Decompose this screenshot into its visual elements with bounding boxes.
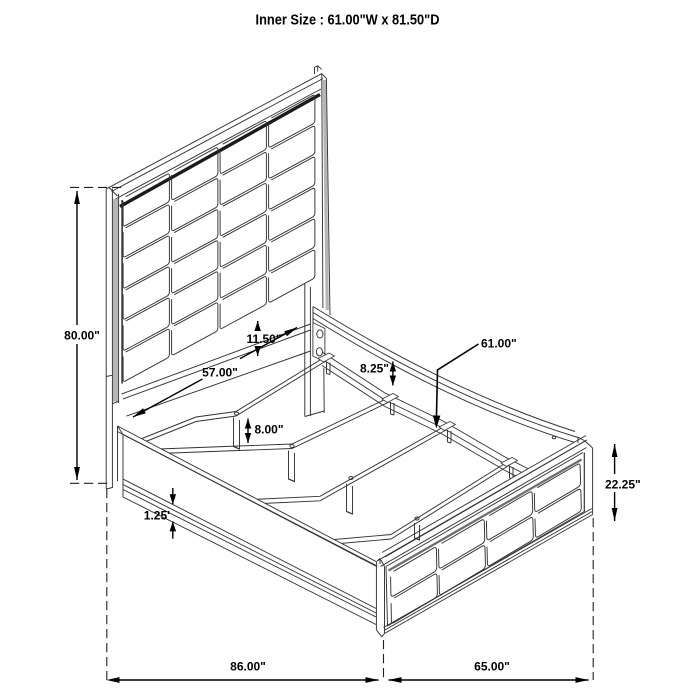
- svg-text:11.50": 11.50": [246, 332, 281, 346]
- svg-text:8.25": 8.25": [360, 362, 389, 376]
- svg-text:8.00": 8.00": [255, 423, 284, 437]
- svg-text:22.25": 22.25": [605, 478, 641, 492]
- svg-text:80.00": 80.00": [64, 329, 100, 343]
- svg-text:86.00": 86.00": [230, 660, 266, 674]
- svg-text:1.25': 1.25': [144, 509, 170, 523]
- svg-text:61.00": 61.00": [481, 337, 517, 351]
- svg-text:65.00": 65.00": [474, 660, 510, 674]
- svg-text:Inner Size : 61.00"W x 81.50"D: Inner Size : 61.00"W x 81.50"D: [256, 12, 440, 29]
- svg-text:57.00": 57.00": [202, 366, 238, 380]
